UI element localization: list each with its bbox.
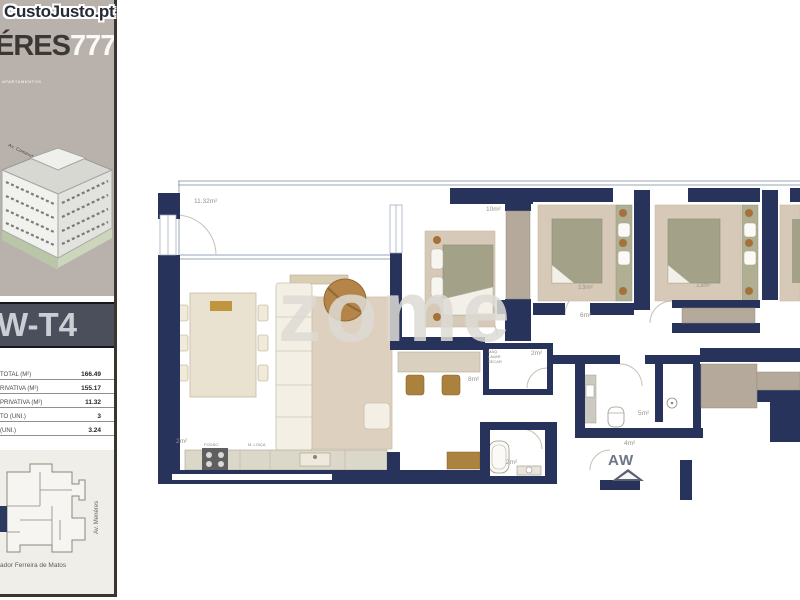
floor-plan-svg: MÁQ.LAVARSECAR zome 11.32m²10m²13m²13m²6… — [150, 165, 800, 500]
unit-entry-code: AW — [608, 452, 634, 469]
row-label: RIVATIVA (M²) — [0, 386, 38, 392]
nightstand — [618, 223, 630, 237]
street-label-vertical: Av. Menéres — [94, 501, 100, 534]
windows — [160, 205, 402, 255]
room-area-label: 4m² — [624, 440, 636, 447]
building-footprint — [7, 464, 85, 552]
row-label: (UNI.) — [0, 428, 16, 434]
nightstand — [744, 223, 756, 237]
table-row: TOTAL (M²) 166.49 — [0, 366, 114, 380]
hall-cabinet — [447, 452, 480, 469]
room-area-label: 13m² — [696, 282, 712, 289]
bath-counter — [584, 375, 596, 423]
stool — [406, 375, 424, 395]
row-value: 3 — [97, 413, 101, 420]
toilet — [608, 407, 624, 427]
basin — [586, 385, 594, 397]
room-area-label: 2m² — [531, 350, 543, 357]
row-label: TOTAL (M²) — [0, 372, 31, 378]
unit-code-banner: W-T4 — [0, 302, 114, 348]
row-label: TO (UNI.) — [0, 414, 26, 420]
lamp — [745, 239, 753, 247]
row-value: 155.17 — [81, 385, 101, 392]
room-area-label: 5m² — [638, 410, 650, 417]
table-row: PRIVATIVA (M²) 11.32 — [0, 394, 114, 408]
table-row: (UNI.) 3.24 — [0, 422, 114, 436]
balcony-rail-gap — [172, 474, 332, 480]
sidebar: ÉRES777 APARTAMENTOS Av. Comendador Ferr… — [0, 0, 117, 597]
faucet — [313, 455, 317, 459]
areas-table: TOTAL (M²) 166.49 RIVATIVA (M²) 155.17 P… — [0, 366, 114, 436]
siteplan-drawing: Av. Menéres — [0, 456, 114, 560]
row-value: 3.24 — [88, 427, 101, 434]
stove — [202, 448, 228, 470]
row-value: 11.32 — [85, 399, 101, 406]
kitchen — [185, 448, 480, 470]
brand-tagline: APARTAMENTOS — [2, 79, 114, 84]
listing-image: { "site_logo": "CustoJusto.pt", "sidebar… — [0, 0, 800, 600]
room-area-label: 10m² — [486, 206, 502, 213]
bedroom-4 — [780, 205, 800, 301]
row-label: PRIVATIVA (M²) — [0, 400, 42, 406]
project-name-dark: ÉRES — [0, 30, 70, 62]
table-runner — [210, 301, 232, 311]
lamp — [619, 209, 627, 217]
kitchen-labels: FOGÃOM. LOIÇA — [204, 442, 266, 447]
room-area-label: 2m² — [506, 459, 518, 466]
custojusto-logo: CustoJusto.pt — [4, 2, 114, 22]
stool — [442, 375, 460, 395]
lamp — [433, 236, 441, 244]
room-area-label: 13m² — [578, 284, 594, 291]
floor-plan: MÁQ.LAVARSECAR zome 11.32m²10m²13m²13m²6… — [150, 165, 800, 500]
lamp — [619, 239, 627, 247]
lamp — [745, 287, 753, 295]
brand-card: ÉRES777 APARTAMENTOS Av. Comendador Ferr… — [0, 0, 114, 296]
room-area-label: 11.32m² — [194, 198, 218, 205]
table-row: TO (UNI.) 3 — [0, 408, 114, 422]
project-name: ÉRES777 — [0, 30, 114, 63]
table-row: RIVATIVA (M²) 155.17 — [0, 380, 114, 394]
lamp — [619, 287, 627, 295]
appliance-label: FOGÃO — [204, 442, 218, 447]
nightstand — [744, 251, 756, 265]
appliance-label: M. LOIÇA — [248, 442, 266, 447]
project-name-accent: 777 — [70, 30, 114, 62]
zome-watermark: zome — [278, 264, 514, 360]
bedroom4-bed — [792, 219, 800, 283]
lamp — [745, 209, 753, 217]
room-area-label: 6m² — [580, 312, 592, 319]
room-area-label: 8m² — [468, 376, 480, 383]
nightstand — [618, 251, 630, 265]
siteplan-card: Av. Menéres ador Ferreira de Matos — [0, 450, 114, 597]
street-label-bottom: ador Ferreira de Matos — [0, 562, 66, 569]
room-area-label: 2m² — [176, 438, 188, 445]
highlighted-unit — [0, 506, 7, 532]
armchair — [364, 403, 390, 429]
sink — [300, 453, 330, 466]
building-illustration: Av. Comendador Ferreira de Matos — [0, 108, 114, 288]
row-value: 166.49 — [81, 371, 101, 378]
